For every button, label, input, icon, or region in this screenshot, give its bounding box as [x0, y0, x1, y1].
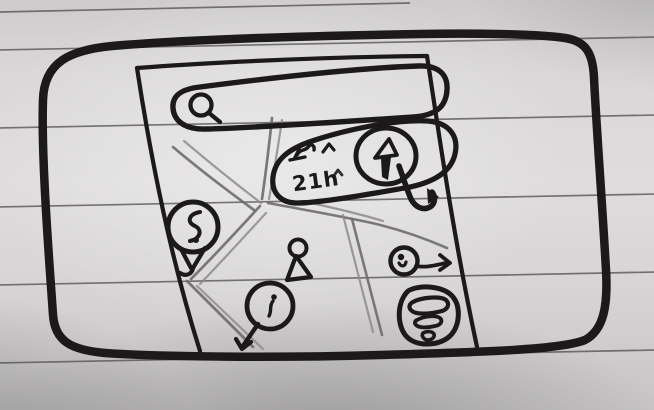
direction-marker[interactable] [391, 248, 451, 275]
layers-button[interactable] [399, 287, 458, 344]
paper-edge-line [0, 3, 410, 12]
map-roads [173, 118, 447, 349]
layers-stack-icon [409, 298, 448, 340]
route-duration: 21h [291, 166, 341, 196]
road [173, 147, 254, 210]
navigate-arrow-icon [375, 139, 397, 180]
road [197, 286, 263, 349]
road [343, 215, 373, 332]
circle-right-arrow-icon [398, 254, 450, 270]
paper-photo: 21h [0, 0, 654, 410]
person-marker-icon [290, 240, 307, 257]
person-marker-body [287, 256, 311, 280]
device-frame [43, 34, 607, 357]
road [191, 206, 260, 279]
search-icon [191, 95, 221, 123]
ruled-line [0, 272, 654, 285]
s-pin-icon [190, 212, 200, 243]
road [184, 141, 261, 203]
sketch-canvas: 21h [0, 0, 654, 410]
device-frame-outline [43, 34, 607, 357]
user-location-marker[interactable] [287, 240, 311, 281]
marker-bubble[interactable] [391, 248, 418, 275]
small-pin-icon [269, 294, 277, 316]
navigate-button[interactable] [356, 128, 416, 184]
